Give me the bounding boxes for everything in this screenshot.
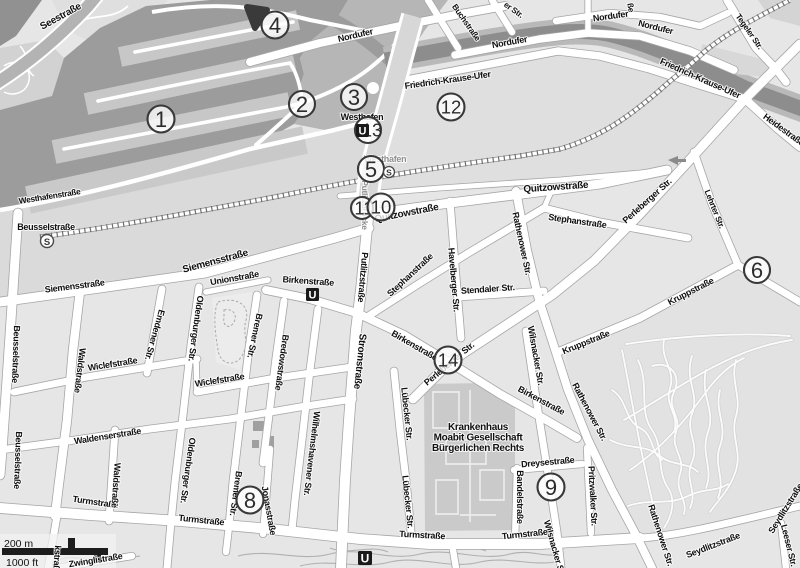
svg-text:Bürgerlichen Rechts: Bürgerlichen Rechts: [432, 443, 525, 454]
svg-text:3: 3: [348, 85, 360, 110]
svg-text:9: 9: [545, 475, 557, 500]
svg-text:Beusselstraße: Beusselstraße: [10, 325, 22, 383]
svg-text:S: S: [44, 237, 50, 248]
svg-text:200 m: 200 m: [4, 538, 33, 550]
svg-text:U: U: [361, 552, 370, 566]
svg-text:1: 1: [155, 107, 167, 132]
svg-text:4: 4: [269, 13, 281, 38]
svg-text:14: 14: [438, 350, 459, 371]
svg-text:Beusselstraße: Beusselstraße: [17, 222, 75, 232]
svg-text:6: 6: [751, 258, 763, 283]
svg-text:5: 5: [365, 157, 377, 182]
svg-text:Bandelstraße: Bandelstraße: [515, 470, 525, 524]
svg-text:U: U: [309, 290, 317, 302]
svg-text:S: S: [386, 168, 392, 178]
svg-text:Krankenhaus: Krankenhaus: [448, 422, 509, 433]
svg-text:Beusselstraße: Beusselstraße: [12, 431, 24, 489]
svg-text:10: 10: [371, 197, 392, 218]
svg-text:8: 8: [244, 488, 256, 513]
svg-text:2: 2: [296, 92, 308, 117]
svg-text:12: 12: [441, 97, 462, 118]
svg-text:1000 ft: 1000 ft: [6, 557, 38, 568]
svg-text:Moabit Gesellschaft: Moabit Gesellschaft: [434, 433, 524, 444]
svg-text:U: U: [359, 126, 367, 138]
